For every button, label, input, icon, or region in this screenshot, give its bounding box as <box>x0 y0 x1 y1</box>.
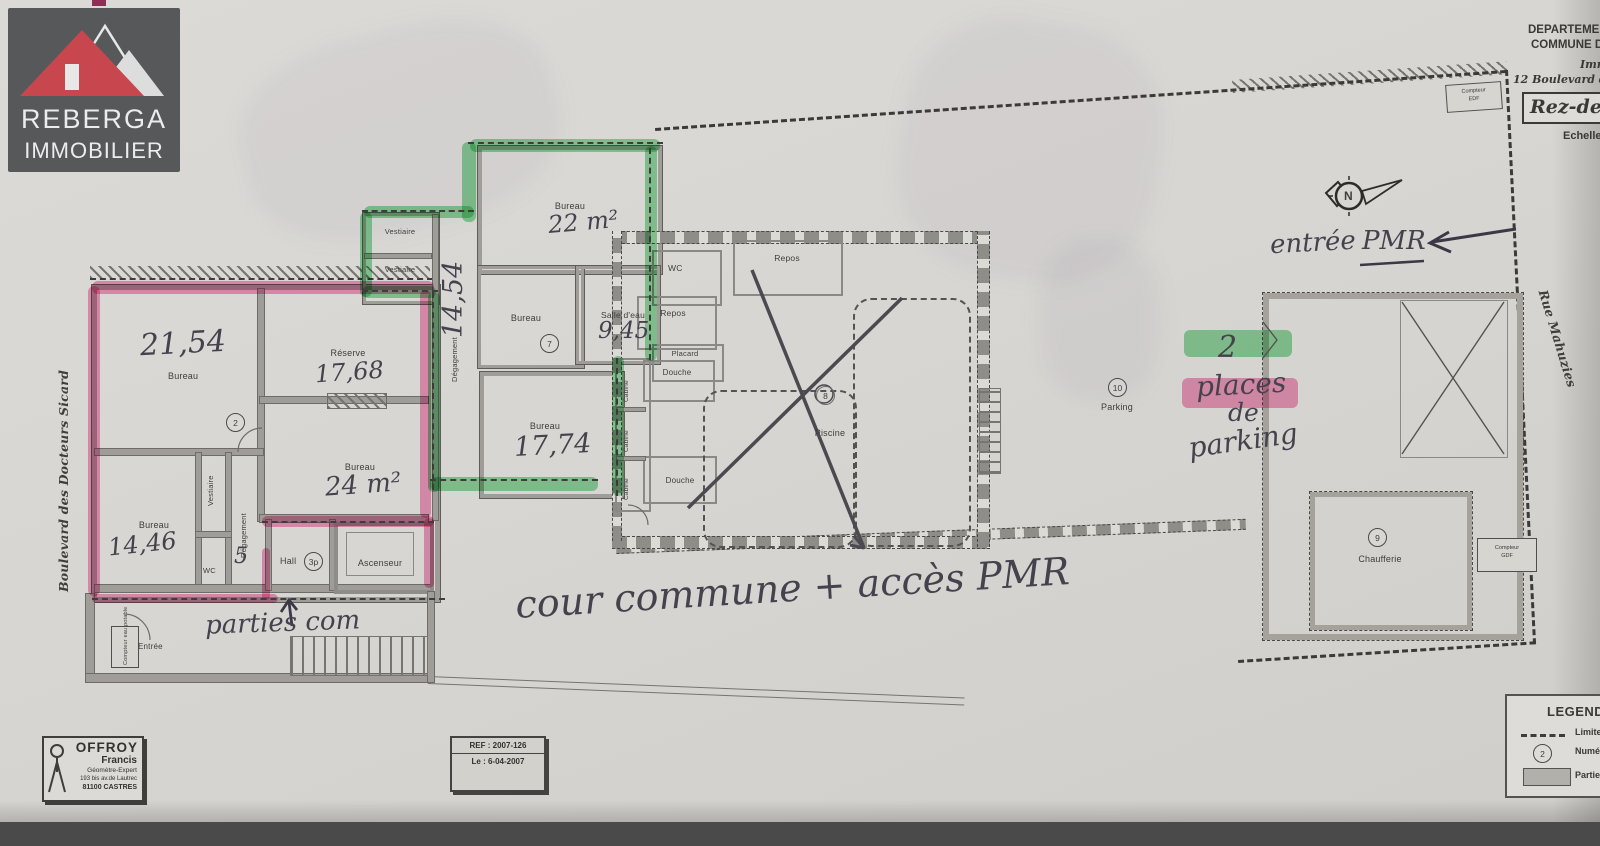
note-cour-commune: cour commune + accès PMR <box>514 549 1071 627</box>
cabine-label: Cabine <box>623 478 630 500</box>
legend-item-1: Limite <box>1575 727 1600 737</box>
cabine-label: Cabine <box>623 380 630 402</box>
header-departement: DEPARTEMENT <box>1528 24 1600 36</box>
house-roof-icon <box>8 8 180 104</box>
piscine-label: Piscine <box>795 428 865 438</box>
pink-highlight <box>262 548 270 600</box>
pool-basin-outline <box>703 390 857 548</box>
stamp-address: 193 bis av.de Lautrec <box>80 776 137 782</box>
stamp-city: 81100 CASTRES <box>83 784 137 791</box>
vestiaire-label: Vestiaire <box>374 265 426 274</box>
agency-logo: REBERGA IMMOBILIER <box>8 8 180 172</box>
chaufferie-label: Chaufferie <box>1335 554 1425 564</box>
water-meter-label: Compteur eau potable <box>122 607 130 665</box>
stamp-role: Géomètre-Expert <box>87 767 137 774</box>
street-left: Boulevard des Docteurs Sicard <box>56 370 71 592</box>
bleed-through-smudge <box>1040 240 1160 400</box>
green-highlight <box>612 356 624 496</box>
green-highlight <box>470 139 660 152</box>
ref-date: Le : 6-04-2007 <box>452 754 544 769</box>
hall-label: Hall <box>280 556 296 566</box>
lot-boundary <box>92 598 445 600</box>
legend-item-2: Numéro <box>1575 746 1600 756</box>
lot-number-2: 2 <box>226 413 245 432</box>
site-boundary-bottom-right <box>1238 641 1536 663</box>
legend-item-3: Parties <box>1575 770 1600 780</box>
legend-box: LEGENDE Limite 2 Numéro Parties <box>1505 694 1600 798</box>
wall-segment <box>95 449 263 455</box>
lot-number-8: 8 <box>816 386 835 405</box>
area-24m2: 24 m² <box>324 467 402 502</box>
legend-title: LEGENDE <box>1547 704 1600 719</box>
wall-segment <box>258 289 264 521</box>
lot-number-7: 7 <box>540 334 559 353</box>
lot-boundary <box>432 292 434 490</box>
legend-lot-sample-text: 2 <box>1540 749 1545 759</box>
lot-number-3p-text: 3p <box>309 557 318 567</box>
hatched-wall-segment <box>327 393 387 409</box>
logo-top-mark <box>92 0 106 6</box>
lot-number-3p: 3p <box>304 552 323 571</box>
area-1768: 17,68 <box>314 356 385 389</box>
area-1454: 14,54 <box>438 261 469 338</box>
legend-fill-sample <box>1523 768 1571 786</box>
repos-room-top <box>733 240 843 296</box>
lot-boundary <box>262 521 434 523</box>
note-pmr: PMR <box>1362 226 1426 256</box>
wall-segment <box>196 532 231 537</box>
vestiaire-label: Vestiaire <box>374 227 426 236</box>
lot-boundary <box>362 290 438 292</box>
bureau-label: Bureau <box>503 313 549 323</box>
lot-boundary <box>616 358 618 496</box>
area-2154: 21,54 <box>139 324 227 363</box>
pool-basin-outline <box>853 298 971 547</box>
ref-number: REF : 2007-126 <box>452 738 544 754</box>
douche-label: Douche <box>648 368 706 377</box>
vestiaire-label: Vestiaire <box>206 475 215 506</box>
lot-number-8-text: 8 <box>823 391 828 401</box>
header-commune: COMMUNE DE <box>1531 39 1600 51</box>
north-letter: N <box>1344 189 1353 203</box>
lot-number-7-text: 7 <box>547 339 552 349</box>
bureau-label: Bureau <box>168 371 198 381</box>
legend-lot-sample: 2 <box>1533 744 1552 763</box>
header-address: 12 Boulevard des <box>1513 73 1600 86</box>
scan-edge-bottom <box>0 822 1600 846</box>
plan-title: Rez-de-chaussée <box>1530 96 1600 118</box>
paper-bottom-shadow <box>0 800 1600 824</box>
cabine-label: Cabine <box>623 430 630 452</box>
green-highlight-2 <box>1184 330 1292 357</box>
lot-boundary <box>430 479 598 481</box>
green-highlight <box>364 206 474 218</box>
stamp-name: OFFROY <box>76 740 138 755</box>
legend-dash-sample <box>1521 734 1565 737</box>
crossed-structure <box>1400 300 1508 458</box>
surveyor-tripod-icon <box>46 742 68 796</box>
lot-boundary <box>649 148 651 360</box>
stairs <box>290 636 428 676</box>
south-site-wall <box>428 676 965 706</box>
hand-5: 5 <box>234 544 248 569</box>
gas-meter-box: Compteur GDF <box>1477 538 1537 572</box>
wall-segment <box>428 592 434 682</box>
water-meter-box: Compteur eau potable <box>111 626 139 668</box>
header-echelle: Echelle <box>1563 130 1600 142</box>
degagement-label: Dégagement <box>450 337 459 382</box>
wall-segment <box>196 453 201 588</box>
lot-number-10: 10 <box>1108 378 1127 397</box>
entree-label: Entrée <box>138 642 163 651</box>
stamp-firstname: Francis <box>101 755 137 766</box>
green-highlight <box>362 286 436 298</box>
note-parties-com: parties com <box>205 605 361 640</box>
repos-label: Repos <box>648 308 698 318</box>
area-945: 9,45 <box>598 318 649 344</box>
elevator-cab <box>346 532 414 576</box>
note-2: 2 <box>1218 330 1237 365</box>
pool-steps <box>979 388 1001 474</box>
edf-meter-line2: EDF <box>1468 96 1479 103</box>
scanned-floor-plan: REBERGA IMMOBILIER DEPARTEMENT COMMUNE D… <box>0 0 1600 846</box>
parking-label: Parking <box>1085 402 1149 412</box>
douche-room-1 <box>643 360 715 402</box>
lot-number-10-text: 10 <box>1113 383 1122 393</box>
reference-box: REF : 2007-126 Le : 6-04-2007 <box>450 736 546 792</box>
area-1774: 17,74 <box>513 428 592 463</box>
pink-highlight <box>88 286 100 596</box>
ascenseur-label: Ascenseur <box>338 558 422 568</box>
header-immeuble: Immeuble <box>1580 58 1600 71</box>
lot-number-9-text: 9 <box>1375 533 1380 543</box>
lot-number-2-text: 2 <box>233 418 238 428</box>
douche-label: Douche <box>652 476 708 485</box>
wc-label: WC <box>668 263 683 273</box>
lot-boundary <box>362 210 474 212</box>
repos-label: Repos <box>762 253 812 263</box>
gas-meter-line1: Compteur <box>1478 544 1536 552</box>
plan-title-box: Rez-de-chaussée <box>1522 92 1600 124</box>
wall-segment <box>86 594 94 682</box>
surveyor-stamp: OFFROY Francis Géomètre-Expert 193 bis a… <box>42 736 144 802</box>
note-entree: entrée <box>1269 226 1356 260</box>
green-highlight <box>360 212 372 297</box>
logo-text-2: IMMOBILIER <box>8 138 180 164</box>
gas-meter-line2: GDF <box>1501 553 1513 559</box>
pink-highlight <box>424 518 434 588</box>
logo-text-1: REBERGA <box>8 104 180 135</box>
edf-meter-box: Compteur EDF <box>1445 81 1503 113</box>
wall-segment <box>226 453 231 588</box>
lot-number-9: 9 <box>1368 528 1387 547</box>
wall-segment <box>365 254 431 258</box>
lot-boundary <box>468 142 663 144</box>
wc-label: WC <box>203 566 216 575</box>
placard-label: Placard <box>655 349 715 358</box>
